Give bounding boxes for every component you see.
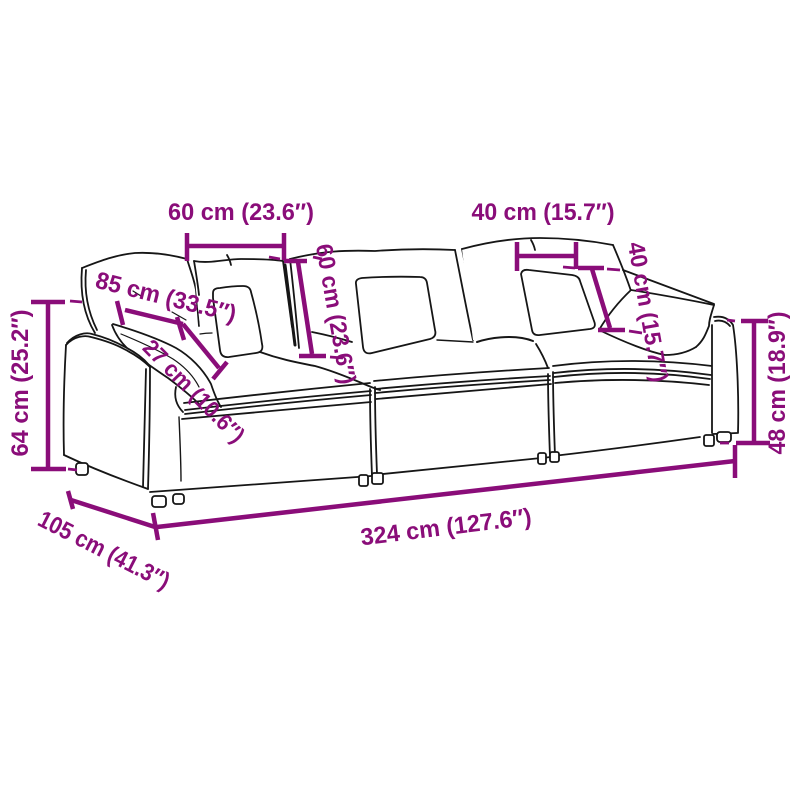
svg-text:40 cm (15.7″): 40 cm (15.7″): [472, 199, 615, 226]
svg-text:64 cm (25.2″): 64 cm (25.2″): [7, 310, 34, 457]
svg-text:324 cm (127.6″): 324 cm (127.6″): [359, 504, 533, 552]
svg-text:60 cm (23.6″): 60 cm (23.6″): [168, 199, 314, 226]
svg-text:48 cm (18.9″): 48 cm (18.9″): [764, 312, 791, 455]
